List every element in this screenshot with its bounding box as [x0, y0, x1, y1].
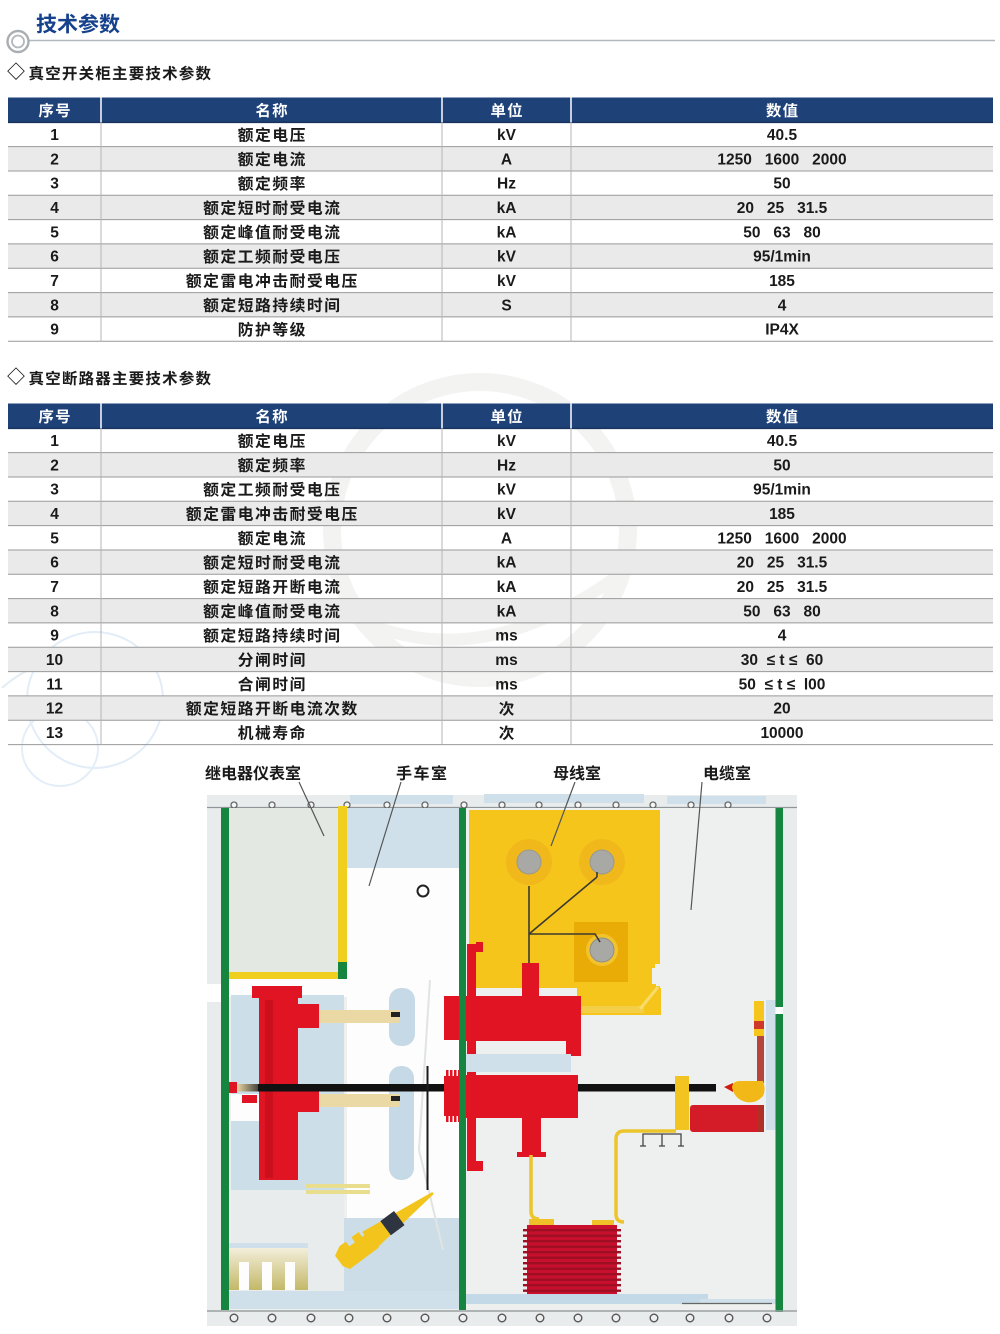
svg-text:40.5: 40.5 — [767, 433, 798, 450]
svg-text:9: 9 — [50, 628, 59, 645]
svg-text:kA: kA — [497, 579, 517, 596]
svg-text:Hz: Hz — [497, 176, 516, 193]
svg-text:20 25 31.5: 20 25 31.5 — [737, 200, 828, 217]
svg-text:ms: ms — [495, 628, 517, 645]
svg-text:IP4X: IP4X — [765, 322, 799, 339]
svg-text:1250 1600 2000: 1250 1600 2000 — [717, 530, 846, 547]
svg-text:40.5: 40.5 — [767, 127, 798, 144]
svg-text:3: 3 — [50, 482, 59, 499]
svg-text:10: 10 — [46, 652, 63, 669]
svg-text:7: 7 — [50, 579, 59, 596]
svg-text:6: 6 — [50, 555, 59, 572]
svg-text:9: 9 — [50, 322, 59, 339]
svg-text:kV: kV — [497, 506, 517, 523]
svg-text:50 63 80: 50 63 80 — [743, 603, 821, 620]
svg-text:11: 11 — [46, 676, 63, 693]
svg-text:kV: kV — [497, 433, 517, 450]
svg-text:20 25 31.5: 20 25 31.5 — [737, 555, 828, 572]
svg-text:4: 4 — [778, 297, 787, 314]
svg-text:A: A — [501, 151, 512, 168]
svg-text:7: 7 — [50, 273, 59, 290]
svg-text:50 63 80: 50 63 80 — [743, 224, 821, 241]
svg-text:6: 6 — [50, 249, 59, 266]
svg-text:kV: kV — [497, 249, 517, 266]
svg-text:kA: kA — [497, 603, 517, 620]
svg-text:5: 5 — [50, 224, 59, 241]
svg-text:50: 50 — [773, 176, 790, 193]
svg-text:50 ≤ t ≤ l00: 50 ≤ t ≤ l00 — [739, 676, 826, 693]
svg-text:A: A — [501, 530, 512, 547]
svg-text:kA: kA — [497, 555, 517, 572]
svg-text:kV: kV — [497, 482, 517, 499]
svg-text:185: 185 — [769, 506, 795, 523]
svg-text:2: 2 — [50, 151, 59, 168]
svg-text:10000: 10000 — [760, 725, 803, 742]
svg-text:kV: kV — [497, 273, 517, 290]
svg-text:12: 12 — [46, 701, 63, 718]
svg-text:ms: ms — [495, 652, 517, 669]
svg-text:4: 4 — [778, 628, 787, 645]
svg-text:kA: kA — [497, 200, 517, 217]
svg-text:kV: kV — [497, 127, 517, 144]
svg-text:1: 1 — [50, 433, 59, 450]
svg-text:8: 8 — [50, 297, 59, 314]
svg-text:4: 4 — [50, 200, 59, 217]
svg-text:1250 1600 2000: 1250 1600 2000 — [717, 151, 846, 168]
svg-text:95/1min: 95/1min — [753, 249, 811, 266]
svg-text:50: 50 — [773, 457, 790, 474]
svg-text:13: 13 — [46, 725, 64, 742]
svg-text:185: 185 — [769, 273, 795, 290]
svg-text:4: 4 — [50, 506, 59, 523]
svg-text:2: 2 — [50, 457, 59, 474]
svg-text:30 ≤ t ≤ 60: 30 ≤ t ≤ 60 — [741, 652, 824, 669]
svg-text:kA: kA — [497, 224, 517, 241]
svg-text:95/1min: 95/1min — [753, 482, 811, 499]
svg-text:20: 20 — [773, 701, 790, 718]
svg-text:20 25 31.5: 20 25 31.5 — [737, 579, 828, 596]
svg-text:S: S — [501, 297, 511, 314]
svg-text:ms: ms — [495, 676, 517, 693]
svg-text:3: 3 — [50, 176, 59, 193]
svg-text:Hz: Hz — [497, 457, 516, 474]
svg-text:8: 8 — [50, 603, 59, 620]
svg-text:1: 1 — [50, 127, 59, 144]
svg-text:5: 5 — [50, 530, 59, 547]
